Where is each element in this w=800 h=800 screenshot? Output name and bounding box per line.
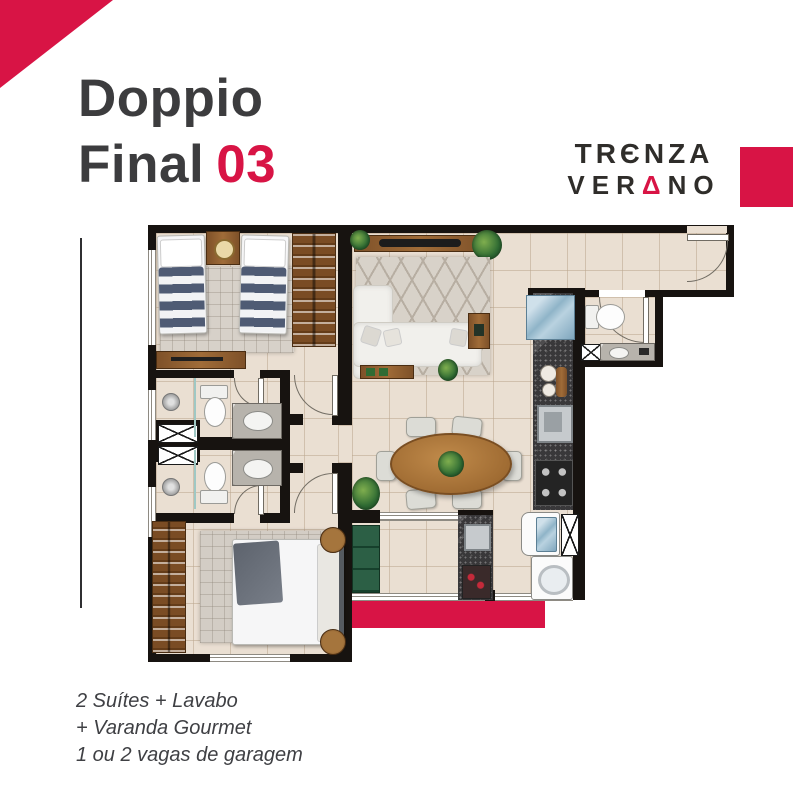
logo-accent-square: [740, 147, 793, 207]
door-leaf-lavabo: [643, 297, 649, 344]
kitchen-glass-top: [526, 295, 575, 340]
bath2-shower-head: [162, 478, 180, 496]
suite2-bed-pillows: [317, 544, 341, 642]
wall-lavabo-right: [655, 297, 663, 367]
lavabo-sink: [609, 347, 629, 359]
lavabo-toilet-bowl: [596, 304, 625, 330]
floor-corridor-mouth: [338, 425, 352, 463]
bath2-toilet-bowl: [204, 462, 226, 492]
kitchen-sink: [537, 405, 573, 443]
brand-logo: TRЄNZA VERΔNO: [560, 138, 728, 200]
kitchen-dish-2: [542, 383, 556, 397]
bath1-shower-head: [162, 393, 180, 411]
wall-stub-suite1-left: [288, 414, 303, 425]
left-divider-line: [80, 238, 82, 608]
suite1-wardrobe: [292, 233, 336, 347]
laundry-washer-frontloader: [531, 556, 573, 600]
flyer-page: { "header": { "title_line1": "Doppio", "…: [0, 0, 800, 800]
suite1-dresser-handle: [171, 357, 223, 361]
wall-entry-bottom: [660, 290, 734, 297]
suite1-nightstand: [206, 231, 240, 265]
balcony-accent-bar: [352, 601, 545, 628]
wall-central-upper: [338, 225, 352, 425]
feature-line-3: 1 ou 2 vagas de garagem: [76, 742, 303, 769]
bath2-glass-partition: [194, 450, 196, 509]
feature-line-2: + Varanda Gourmet: [76, 715, 303, 742]
feature-list: 2 Suítes + Lavabo + Varanda Gourmet 1 ou…: [76, 688, 303, 769]
suite1-bed-right: [239, 234, 290, 334]
unit-number: 03: [216, 135, 276, 194]
sofa-pillow-2: [382, 327, 402, 347]
living-plant-top-right: [472, 230, 502, 260]
frontloader-door: [538, 565, 570, 595]
sofa-main: [353, 322, 482, 367]
suite2-bed-headboard: [339, 540, 344, 644]
kitchen-dish-1: [540, 365, 557, 382]
wall-lavabo-bottom: [585, 360, 663, 367]
bath2-toilet-tank: [200, 490, 228, 504]
living-plant-console: [438, 359, 458, 381]
bath1-sink: [243, 411, 273, 431]
console-plant-1: [366, 368, 375, 376]
tv-screen: [379, 239, 461, 247]
suite1-bed-right-duvet: [240, 266, 287, 332]
title-line1: Doppio: [78, 66, 276, 132]
bath2-sink: [243, 459, 273, 479]
window-varanda-door: [380, 512, 458, 521]
door-leaf-bath2: [258, 485, 264, 515]
wall-suite1-bottom: [148, 370, 280, 378]
wall-lavabo-top-right: [645, 290, 660, 297]
opening-bath1: [234, 370, 260, 378]
suite1-bed-left-pillow: [160, 238, 203, 267]
suite1-bed-right-pillow: [243, 238, 286, 267]
window-suite1: [148, 250, 156, 345]
feature-line-1: 2 Suítes + Lavabo: [76, 688, 303, 715]
brand-logo-line1: TRЄNZA: [560, 138, 728, 170]
living-side-cabinet: [468, 313, 490, 349]
suite2-nightstand-bottom: [320, 629, 346, 655]
varanda-bench: [352, 525, 380, 593]
kitchen-cutting-board: [556, 367, 567, 397]
living-tv-panel: [354, 235, 486, 252]
kitchen-sink-basin: [544, 412, 562, 432]
suite1-bed-left-duvet: [159, 266, 206, 332]
wall-bath-right: [280, 370, 290, 523]
duct-shaft-bath1: [158, 424, 198, 443]
sofa-pillow-1: [360, 325, 383, 348]
opening-entrance: [687, 226, 727, 233]
duct-shaft-lavabo: [581, 344, 601, 361]
door-leaf-entrance: [687, 234, 729, 241]
dining-centerpiece: [438, 451, 464, 477]
suite1-dresser: [156, 351, 246, 369]
duct-shaft-bath2: [158, 446, 198, 465]
opening-bath2: [234, 513, 260, 523]
floor-plan: [148, 225, 734, 662]
bath1-vanity: [232, 403, 282, 439]
red-triangle-a-glyph: Δ: [642, 170, 668, 200]
wall-stub-suite2-left: [288, 463, 303, 473]
page-title: Doppio Final03: [78, 66, 276, 198]
bath1-glass-partition: [194, 378, 196, 437]
suite2-wardrobe: [152, 521, 186, 653]
brand-logo-line2: VERΔNO: [560, 170, 728, 200]
sofa-pillow-3: [449, 328, 469, 348]
suite2-bed-throw: [233, 540, 283, 605]
stylized-e-glyph: Є: [620, 138, 644, 169]
varanda-wine-cooler: [462, 565, 491, 599]
bath2-vanity: [232, 450, 282, 486]
console-plant-2: [379, 368, 388, 376]
lavabo-faucet: [639, 348, 649, 355]
wall-lavabo-top-left: [585, 290, 599, 297]
window-suite2: [210, 654, 290, 662]
living-console: [360, 365, 414, 379]
window-bath1: [148, 390, 156, 440]
washer-lid: [536, 517, 557, 552]
wall-varanda-left: [352, 510, 380, 523]
varanda-sink: [464, 524, 491, 551]
living-plant-corner: [352, 477, 380, 510]
lavabo-vanity: [600, 343, 655, 361]
suite1-lamp: [214, 239, 235, 260]
title-line2: Final03: [78, 132, 276, 198]
side-cabinet-plant: [474, 324, 484, 336]
door-leaf-suite2: [332, 473, 338, 514]
suite2-nightstand-top: [320, 527, 346, 553]
kitchen-stove: [535, 460, 573, 506]
bath1-toilet-bowl: [204, 397, 226, 427]
duct-shaft-laundry: [561, 514, 579, 556]
laundry-washer-toploader: [521, 512, 560, 556]
suite1-bed-left: [157, 234, 208, 334]
dining-table: [390, 433, 512, 495]
wall-stub-suite2-right: [332, 463, 352, 473]
door-leaf-suite1: [332, 375, 338, 416]
living-plant-top-left: [350, 230, 370, 250]
